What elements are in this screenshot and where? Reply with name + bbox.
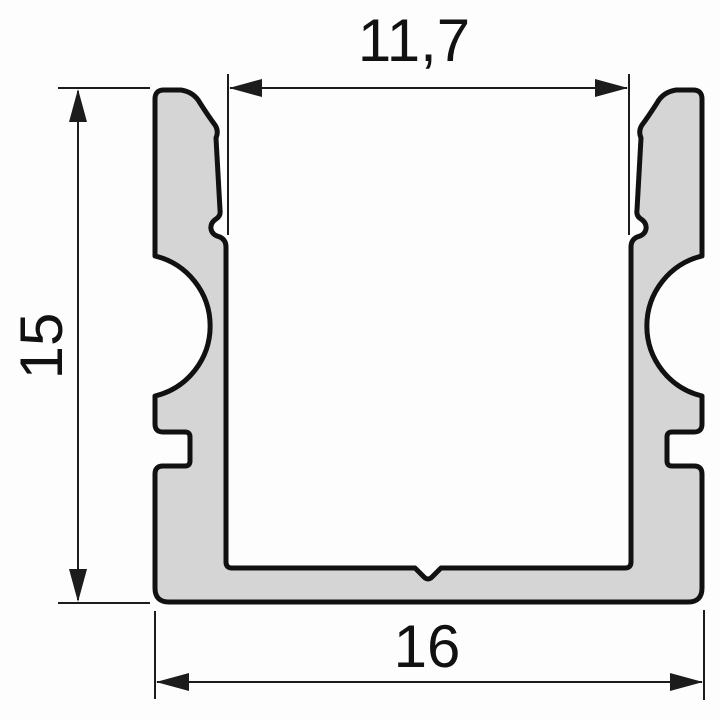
dimension-label-height: 15: [8, 313, 75, 380]
profile-drawing-canvas: 11,7 15 16: [0, 0, 720, 720]
dimension-label-outer-width: 16: [394, 613, 461, 680]
arrowhead-up-icon: [69, 89, 87, 122]
dimension-inner-width: 11,7: [228, 7, 629, 235]
arrowhead-right-icon: [595, 79, 628, 97]
dimension-outer-width: 16: [155, 610, 704, 700]
arrowhead-left-icon: [229, 79, 262, 97]
arrowhead-left-icon: [156, 673, 189, 691]
profile-cross-section-outline: [155, 90, 702, 602]
arrowhead-right-icon: [670, 673, 703, 691]
technical-drawing: 11,7 15 16: [0, 0, 720, 720]
dimension-label-inner-width: 11,7: [358, 7, 470, 74]
dimension-height: 15: [8, 88, 150, 603]
arrowhead-down-icon: [69, 569, 87, 602]
